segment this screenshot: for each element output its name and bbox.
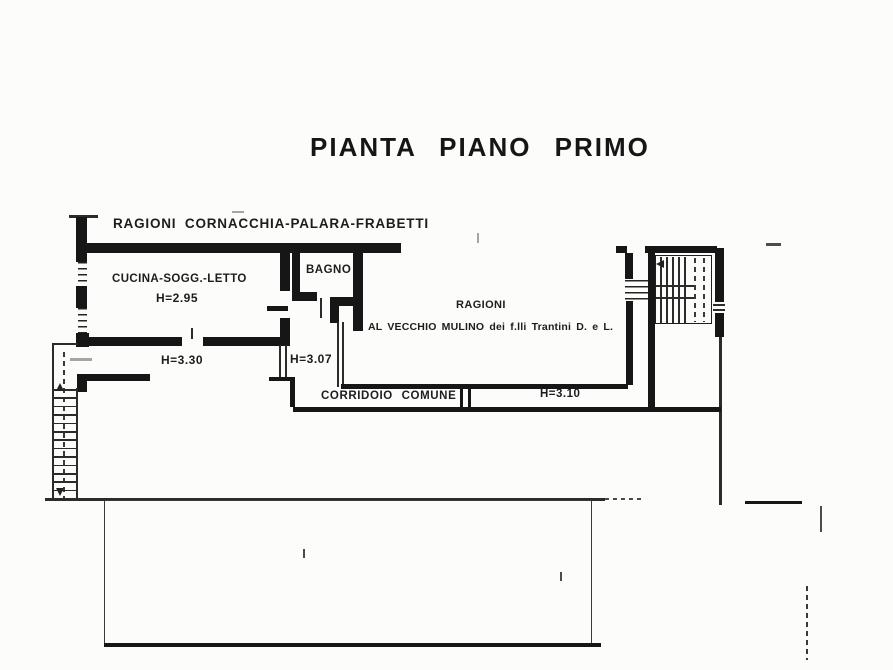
projection-line-dashed: [605, 498, 641, 500]
interior-wall: [77, 374, 87, 392]
stairwell-wall: [648, 253, 655, 409]
room-label-bagno: BAGNO: [306, 264, 351, 276]
door-jamb-line: [713, 309, 725, 311]
stairwell-wall: [626, 301, 633, 385]
lower-floor-outline-bottom: [104, 643, 601, 647]
corridor-wall-top: [341, 384, 628, 389]
stair-tread: [53, 473, 77, 475]
stair-landing-line: [656, 297, 696, 299]
stair-edge: [76, 388, 78, 500]
stair-direction-line: [63, 352, 65, 498]
stairwell-wall: [715, 313, 724, 337]
boundary-line: [52, 343, 78, 345]
boundary-line: [719, 337, 722, 505]
stair-tread: [53, 397, 77, 399]
scan-tick: [232, 211, 244, 213]
stairwell-wall: [625, 253, 633, 279]
stairwell-wall: [715, 248, 724, 302]
stair-tread: [53, 465, 77, 467]
stair-tread: [684, 257, 686, 323]
boundary-dash: [745, 501, 802, 504]
scan-tick: [303, 549, 305, 558]
stair-landing-line: [656, 285, 696, 287]
scan-dash: [766, 243, 781, 246]
partition-line: [285, 345, 287, 378]
bathroom-wall: [330, 297, 339, 323]
bathroom-wall: [292, 292, 317, 301]
stair-tread: [53, 456, 77, 458]
corridor-wall-bottom: [293, 407, 721, 412]
stair-tread: [53, 498, 77, 500]
stair-tread: [53, 431, 77, 433]
exterior-wall: [76, 286, 87, 308]
stair-tread: [678, 257, 680, 323]
partition-line: [342, 322, 344, 387]
boundary-line: [52, 343, 54, 500]
stair-arrow: [656, 260, 664, 268]
stairwell-wall: [645, 246, 717, 253]
door-jamb: [468, 384, 471, 411]
exterior-wall: [76, 217, 87, 262]
scan-dash: [820, 506, 822, 532]
room-height-corridor: H=3.10: [540, 388, 580, 400]
lower-floor-outline: [104, 500, 592, 643]
stair-tread: [666, 257, 668, 323]
label-owners-right-line2: AL VECCHIO MULINO dei f.lli Trantini D. …: [368, 321, 613, 333]
window-hatch: [78, 308, 87, 333]
floor-plan-page: PIANTA PIANO PRIMO RAGIONI CORNACCHIA-PA…: [0, 0, 893, 670]
bathroom-wall: [353, 253, 363, 331]
window-hatch: [78, 262, 87, 286]
door-swing-line: [320, 298, 322, 318]
label-owners-top: RAGIONI CORNACCHIA-PALARA-FRABETTI: [113, 216, 429, 231]
room-label-corridor: CORRIDOIO COMUNE: [321, 390, 456, 402]
stairwell-wall: [616, 246, 627, 253]
stair-direction-line: [694, 258, 696, 322]
stair-tread: [53, 414, 77, 416]
label-owners-right-line1: RAGIONI: [456, 299, 506, 311]
partition-line: [337, 322, 339, 387]
door-jamb-line: [267, 306, 288, 311]
scan-tick: [560, 572, 562, 581]
partition-wall: [280, 318, 290, 346]
room-height-cucina: H=2.95: [156, 291, 198, 305]
boundary-line-dashed: [806, 586, 808, 660]
plan-title: PIANTA PIANO PRIMO: [310, 132, 650, 163]
stair-tread: [53, 439, 77, 441]
stair-tread: [703, 258, 705, 322]
interior-wall: [203, 337, 288, 346]
door-jamb-line: [713, 304, 725, 306]
stair-tread: [53, 423, 77, 425]
stair-tread: [53, 448, 77, 450]
room-height-left: H=3.30: [161, 353, 203, 367]
partition-wall: [280, 253, 290, 291]
corridor-wall: [290, 377, 295, 407]
exterior-wall-top: [85, 243, 401, 253]
partition-line: [279, 345, 281, 378]
room-height-mid: H=3.07: [290, 352, 332, 366]
interior-wall: [77, 337, 182, 346]
scan-smudge: [70, 358, 92, 361]
stair-tread: [53, 481, 77, 483]
interior-wall: [77, 374, 150, 381]
door-jamb: [460, 384, 463, 411]
scan-tick: [477, 233, 479, 243]
door-jamb-line: [191, 328, 193, 339]
stair-tread: [672, 257, 674, 323]
stair-arrow-down: [56, 488, 64, 496]
stair-tread: [53, 406, 77, 408]
stair-arrow-up: [56, 383, 64, 391]
bathroom-wall: [292, 253, 300, 293]
room-label-cucina: CUCINA-SOGG.-LETTO: [112, 273, 247, 285]
